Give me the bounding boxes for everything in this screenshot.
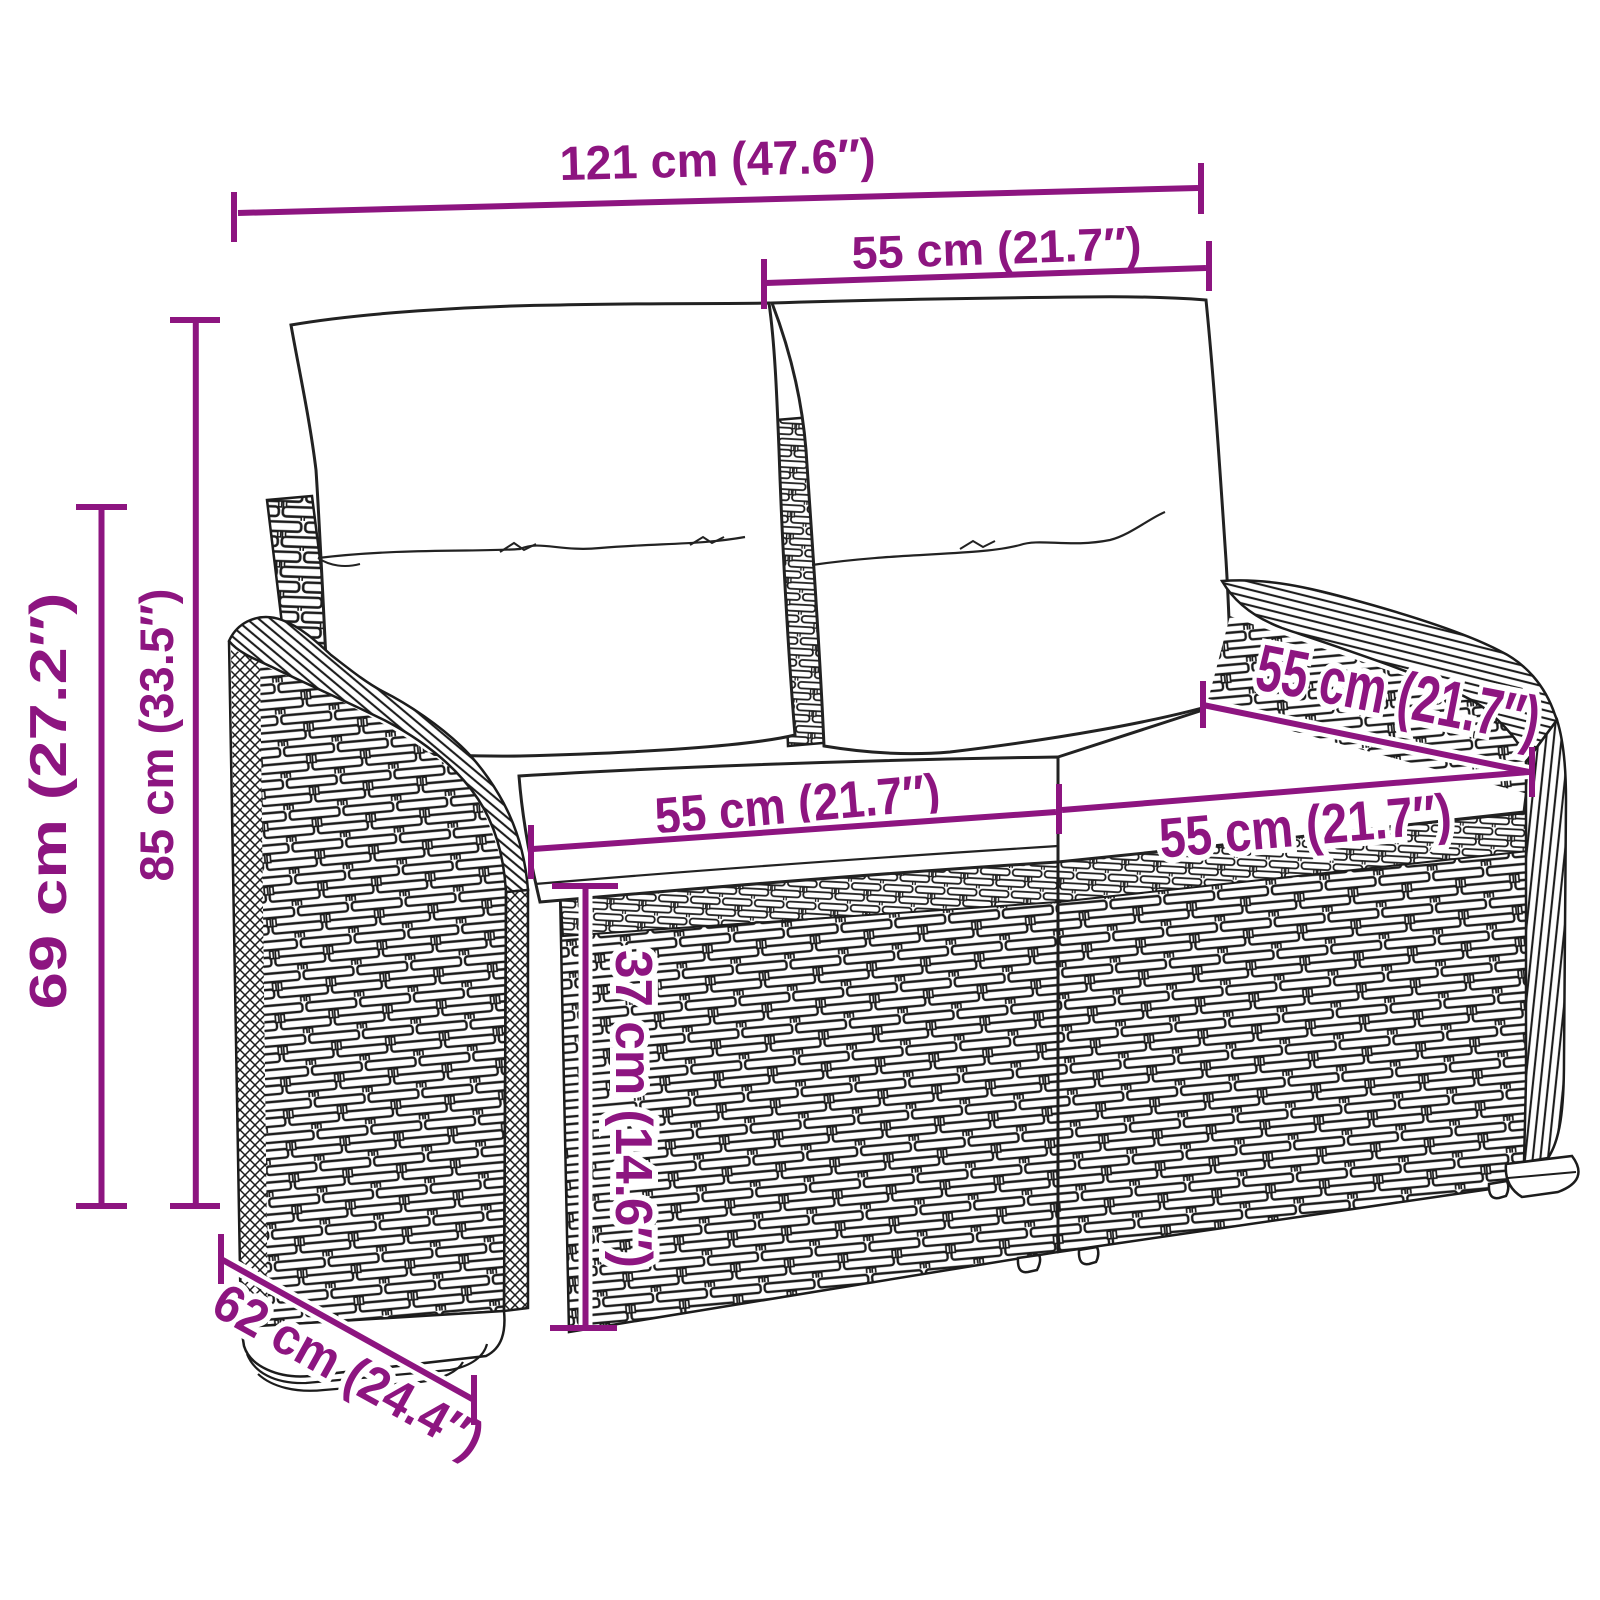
svg-text:85 cm (33.5″): 85 cm (33.5″) <box>130 589 183 882</box>
svg-text:37 cm (14.6″): 37 cm (14.6″) <box>604 950 662 1268</box>
svg-text:69 cm (27.2″): 69 cm (27.2″) <box>20 593 78 1010</box>
svg-text:121 cm (47.6″): 121 cm (47.6″) <box>559 130 876 191</box>
